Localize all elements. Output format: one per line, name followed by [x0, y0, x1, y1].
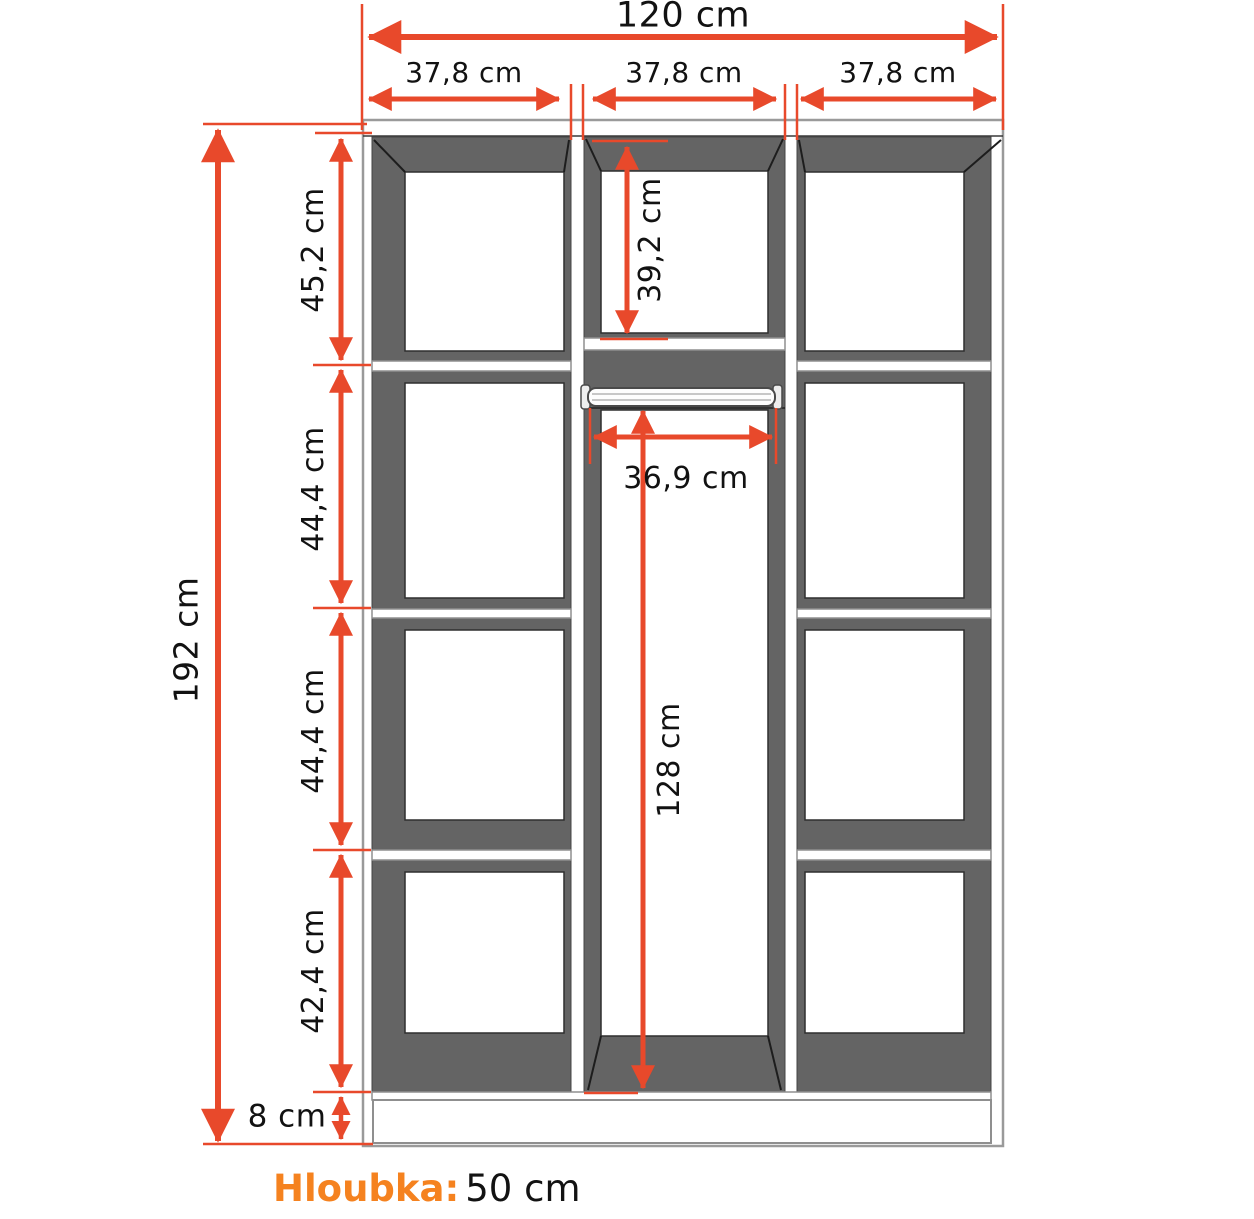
- dim-total-height: 192 cm: [170, 577, 203, 704]
- dim-section-4: 42,4 cm: [299, 908, 329, 1034]
- wardrobe-dimension-diagram: 120 cm 37,8 cm 37,8 cm 37,8 cm 192 cm 45…: [0, 0, 1254, 1219]
- dim-column-width-2: 37,8 cm: [625, 59, 742, 87]
- plinth: [373, 1100, 991, 1143]
- dim-total-width: 120 cm: [616, 0, 750, 34]
- dim-section-1: 45,2 cm: [299, 187, 329, 313]
- depth-row: Hloubka: 50 cm: [273, 1170, 581, 1207]
- dim-section-2: 44,4 cm: [299, 426, 329, 552]
- hanging-rod: [581, 385, 785, 409]
- dim-plinth-height: 8 cm: [248, 1102, 327, 1133]
- depth-label: Hloubka:: [273, 1170, 459, 1207]
- cabinet-body: [363, 120, 1003, 1146]
- dim-middle-top: 39,2 cm: [636, 177, 666, 303]
- depth-value: 50 cm: [465, 1170, 580, 1207]
- dim-column-width-3: 37,8 cm: [839, 59, 956, 87]
- dim-hanging-height: 128 cm: [655, 702, 685, 818]
- dim-rod-width: 36,9 cm: [623, 464, 749, 494]
- dim-column-width-1: 37,8 cm: [405, 59, 522, 87]
- dim-section-3: 44,4 cm: [299, 668, 329, 794]
- bottom-board: [372, 1092, 991, 1100]
